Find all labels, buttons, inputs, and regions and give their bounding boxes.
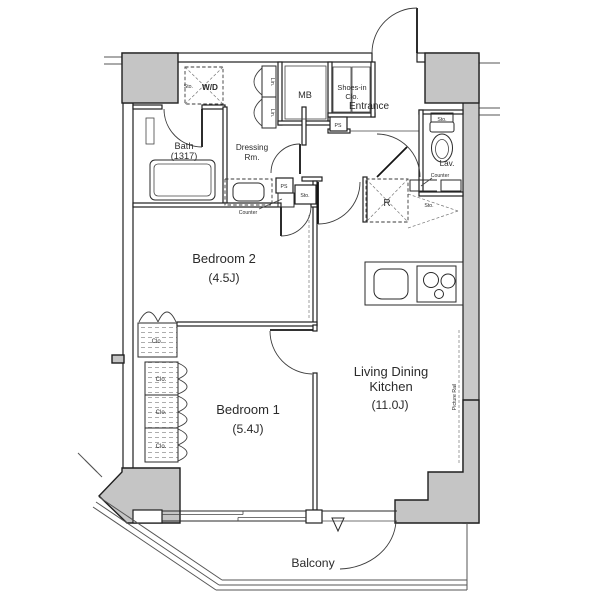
ldk-label-1: Living Dining (354, 364, 428, 379)
kitchen-sink-icon (374, 269, 408, 299)
wd-sto-label: Sto. (184, 84, 193, 90)
kitchen-counter (365, 262, 463, 305)
wall-south-bedroom1 (133, 510, 162, 523)
wd-label: W/D (202, 83, 218, 92)
shoes-closet-label-2: Clo. (345, 92, 358, 101)
ldk-door (318, 182, 360, 224)
linen-cabinet (254, 66, 276, 128)
door-pivot-mark (332, 518, 344, 531)
wall-bedroom2-bedroom1 (177, 322, 317, 326)
closets (138, 312, 187, 462)
bath-size-label: (1317) (171, 151, 198, 161)
wall-south-post (306, 510, 322, 523)
wall-bedroom1-ldk-b (313, 373, 317, 510)
shoes-closet-label-1: Shoes-in (337, 83, 366, 92)
wall-bath-dressing (223, 107, 227, 205)
bedroom1-door (270, 330, 313, 374)
outer-wall-left (123, 103, 133, 470)
closet-label-b1-2: Clo. (156, 410, 167, 416)
pillar-bottom-right (395, 400, 479, 523)
window-bedroom1 (162, 511, 306, 521)
balcony-label: Balcony (291, 556, 335, 570)
lav-label: Lav. (440, 159, 455, 168)
wall-lav-bottom (419, 192, 463, 196)
ldk-label-2: Kitchen (369, 379, 412, 394)
mb-label: MB (298, 90, 312, 100)
stove-icon (417, 266, 456, 302)
bedroom1-label: Bedroom 1 (216, 402, 280, 417)
wall-bedroom1-ldk-a (313, 325, 317, 331)
ldk-size-label: (11.0J) (371, 398, 408, 412)
lav-sto-label: Sto. (437, 117, 446, 123)
entrance-door (372, 8, 417, 53)
linen-label-2: Lin. (269, 109, 275, 117)
closet-label-b1-3: Clo. (156, 444, 167, 450)
dressing-counter-label: Counter (239, 210, 258, 216)
kitchen-sto-label: Sto. (424, 203, 433, 209)
wall-jut-left (112, 355, 124, 363)
bath-shelf (146, 118, 154, 144)
floor-plan-drawing: Sto. W/D Lin. Lin. MB Shoes-in Clo. Entr… (0, 0, 600, 599)
picture-rail-label: Picture Rail (452, 384, 458, 411)
fixtures (146, 66, 463, 305)
wall-hall-south (302, 177, 322, 181)
linen-label-1: Lin. (269, 78, 275, 86)
refrigerator-label: R (383, 198, 390, 209)
closet-label-b2: Clo. (152, 339, 163, 345)
dressing-label-1: Dressing (236, 143, 269, 152)
ps-dressing-label: PS (281, 184, 288, 190)
linen-door-arc-2 (254, 99, 262, 126)
wall-bath-top-a (133, 105, 162, 109)
ps-entrance-label: PS (335, 123, 342, 129)
wall-bath-top-b (202, 105, 225, 109)
bedroom2-size-label: (4.5J) (208, 271, 239, 285)
pillar-top-right (425, 53, 479, 103)
dressing-label-2: Rm. (244, 153, 259, 162)
bedroom2-door (281, 206, 311, 236)
bedroom1-size-label: (5.4J) (232, 422, 263, 436)
lav-counter (410, 178, 461, 191)
door-arc-balcony (340, 521, 396, 569)
linen-door-arc-1 (254, 68, 262, 95)
lav-counter-label: Counter (431, 173, 450, 179)
entrance-label: Entrance (349, 101, 389, 112)
hall-sto-label: Sto. (300, 193, 309, 199)
closet-bedroom2 (138, 312, 177, 357)
wall-mb-left (278, 62, 282, 125)
windows (162, 511, 397, 569)
pillar-top-left (122, 53, 178, 103)
kitchen-storage-dashes (408, 194, 458, 228)
closet-label-b1-1: Clo. (156, 377, 167, 383)
floor-plan-page: Sto. W/D Lin. Lin. MB Shoes-in Clo. Entr… (0, 0, 600, 599)
bath-label: Bath (175, 141, 194, 151)
structure (78, 53, 500, 523)
hallway-door (377, 134, 420, 177)
wall-dressing-right (302, 107, 306, 145)
wall-mb-right (328, 62, 332, 121)
dressing-door (271, 144, 300, 174)
bedroom2-label: Bedroom 2 (192, 251, 256, 266)
